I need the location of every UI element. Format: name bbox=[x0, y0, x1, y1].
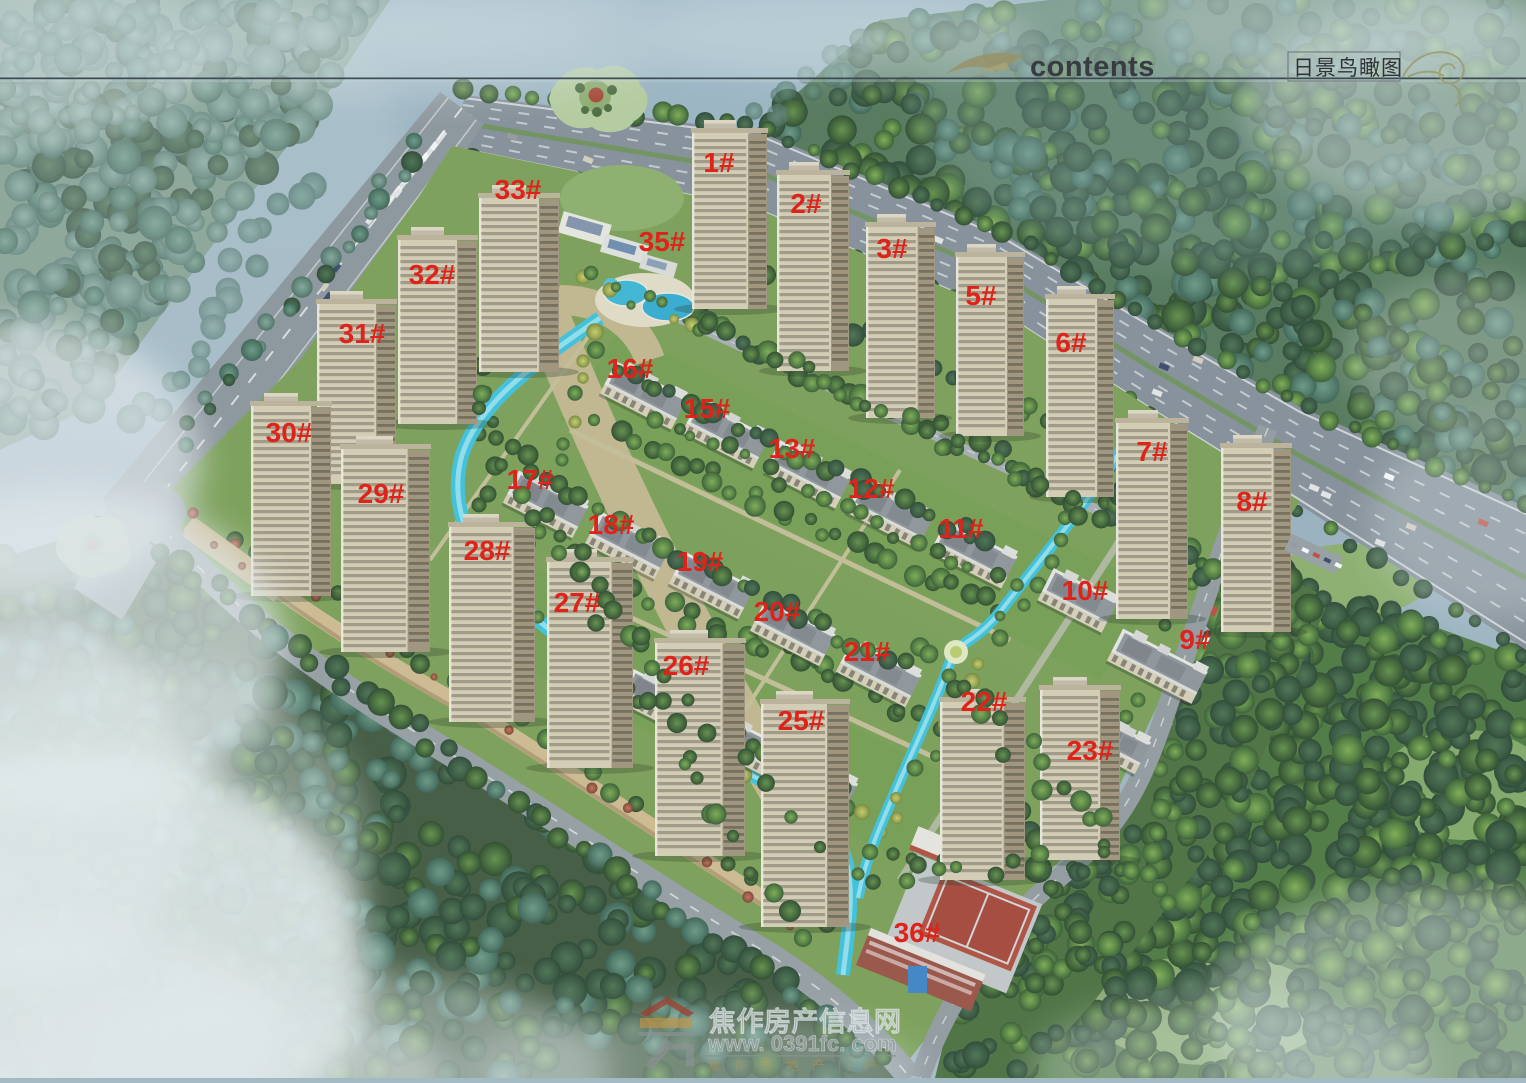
svg-text:9#: 9# bbox=[1179, 624, 1211, 655]
svg-text:10#: 10# bbox=[1062, 575, 1109, 606]
svg-text:7#: 7# bbox=[1136, 436, 1168, 467]
svg-text:32#: 32# bbox=[409, 259, 456, 290]
svg-text:8#: 8# bbox=[1236, 486, 1268, 517]
svg-text:www. 0391fc. com: www. 0391fc. com bbox=[707, 1031, 897, 1056]
svg-text:20#: 20# bbox=[754, 596, 801, 627]
svg-text:33#: 33# bbox=[495, 174, 542, 205]
svg-text:31#: 31# bbox=[339, 318, 386, 349]
svg-text:日景鸟瞰图: 日景鸟瞰图 bbox=[1293, 57, 1403, 80]
svg-text:23#: 23# bbox=[1067, 735, 1114, 766]
svg-text:30#: 30# bbox=[266, 417, 313, 448]
svg-text:16#: 16# bbox=[607, 353, 654, 384]
svg-text:25#: 25# bbox=[778, 705, 825, 736]
svg-text:3#: 3# bbox=[876, 233, 908, 264]
svg-text:35#: 35# bbox=[639, 226, 686, 257]
svg-text:17#: 17# bbox=[507, 464, 554, 495]
svg-text:18#: 18# bbox=[588, 509, 635, 540]
svg-text:28#: 28# bbox=[464, 535, 511, 566]
svg-text:2#: 2# bbox=[790, 188, 822, 219]
svg-text:5#: 5# bbox=[965, 280, 997, 311]
svg-text:焦作房地产门户: 焦作房地产门户 bbox=[708, 1058, 890, 1073]
svg-text:21#: 21# bbox=[844, 636, 891, 667]
svg-text:22#: 22# bbox=[961, 686, 1008, 717]
svg-text:1#: 1# bbox=[703, 147, 735, 178]
svg-text:29#: 29# bbox=[358, 478, 405, 509]
svg-text:6#: 6# bbox=[1055, 327, 1087, 358]
svg-text:26#: 26# bbox=[663, 650, 710, 681]
svg-text:19#: 19# bbox=[677, 546, 724, 577]
svg-text:15#: 15# bbox=[684, 393, 731, 424]
svg-text:13#: 13# bbox=[769, 433, 816, 464]
svg-text:11#: 11# bbox=[938, 513, 984, 544]
svg-text:27#: 27# bbox=[554, 587, 601, 618]
svg-text:12#: 12# bbox=[848, 473, 895, 504]
svg-text:36#: 36# bbox=[894, 917, 941, 948]
svg-text:contents: contents bbox=[1030, 51, 1155, 83]
